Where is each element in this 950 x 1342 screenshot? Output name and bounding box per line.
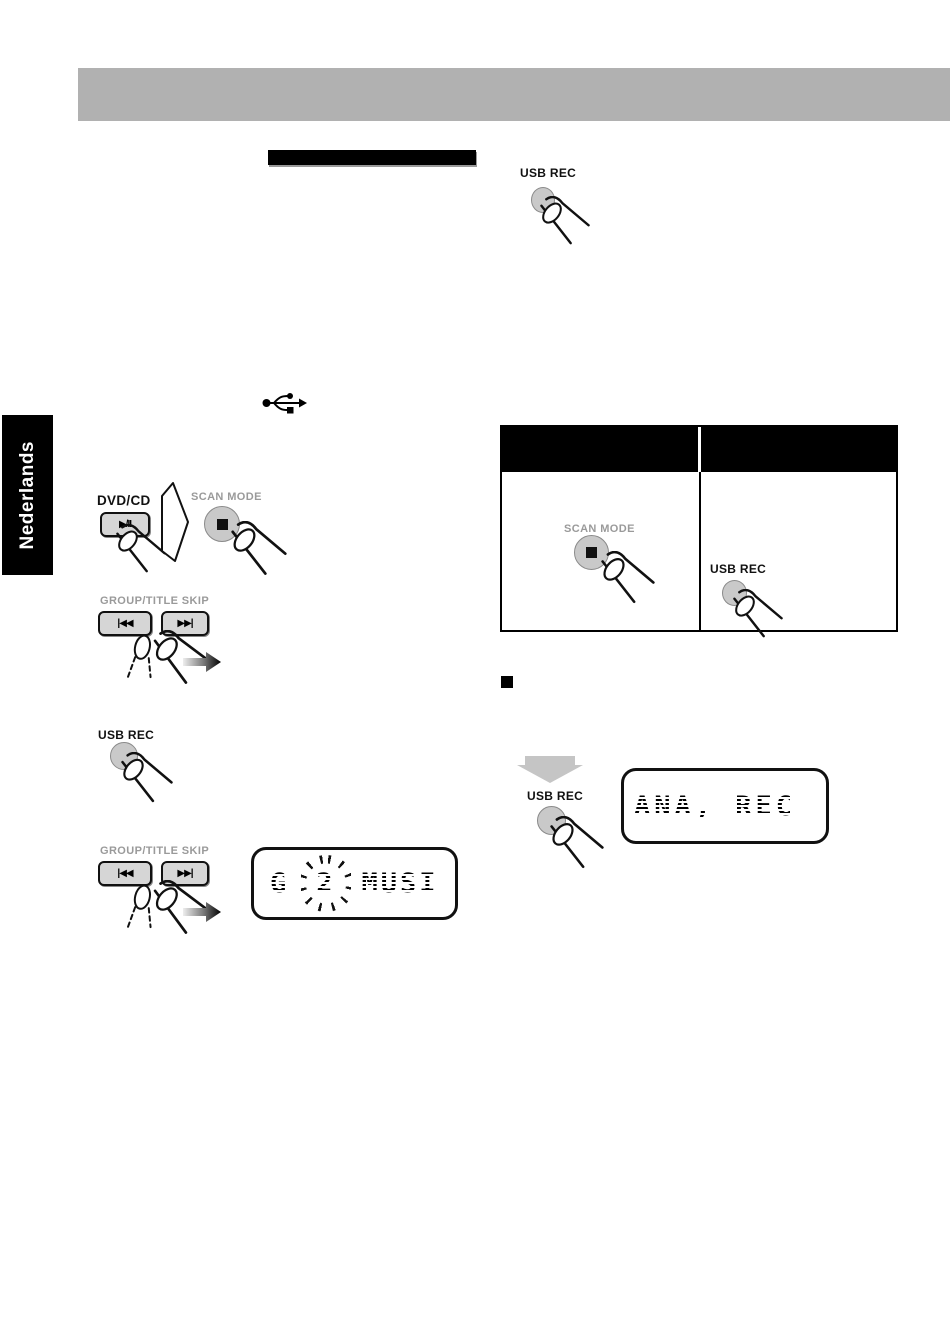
press-repeatedly-arrow-icon (183, 902, 221, 922)
pressing-finger-icon (597, 551, 659, 607)
pressing-finger-icon (117, 752, 177, 806)
language-tab-nederlands: Nederlands (2, 415, 53, 575)
options-table: SCAN MODE USB REC (500, 425, 898, 632)
lcd-group-blinking-digit: 2 (316, 868, 335, 899)
skip-forward-glyph: ▶▶| (177, 618, 192, 629)
usb-rec-label: USB REC (527, 789, 583, 803)
skip-back-glyph: |◀◀ (117, 868, 132, 879)
lcd-display-group: G 2 MUSI (251, 847, 458, 920)
usb-rec-label: USB REC (520, 166, 576, 180)
pressing-finger-icon (546, 816, 608, 872)
usb-rec-label: USB REC (710, 562, 766, 576)
lcd-group-suffix: MUSI (362, 868, 439, 899)
proceed-arrow-icon (157, 480, 190, 564)
pressing-finger-icon (227, 521, 291, 579)
manual-page: USB REC Nederlands DVD/CD ▶/II SCAN MODE… (0, 0, 950, 1342)
page-header-bar (78, 68, 950, 121)
scan-mode-label: SCAN MODE (564, 523, 635, 535)
lcd-group-prefix: G (270, 868, 289, 899)
skip-forward-glyph: ▶▶| (177, 868, 192, 879)
table-column-divider (699, 472, 701, 632)
press-repeatedly-arrow-icon (183, 652, 221, 672)
table-header-row (502, 427, 896, 472)
scan-mode-label: SCAN MODE (191, 491, 262, 503)
group-title-skip-label: GROUP/TITLE SKIP (100, 845, 209, 857)
table-body-row: SCAN MODE USB REC (502, 472, 896, 632)
skip-back-glyph: |◀◀ (117, 618, 132, 629)
pressing-finger-icon (729, 589, 787, 641)
pressing-finger-icon (536, 196, 594, 248)
lcd-rec-text: ANA, REC (634, 791, 796, 822)
then-down-arrow-icon (517, 756, 583, 783)
usb-trident-icon (262, 389, 308, 416)
stop-glyph (217, 519, 228, 530)
lcd-display-rec: ANA, REC (621, 768, 829, 844)
dvd-cd-label: DVD/CD (97, 493, 151, 508)
bullet-square-icon (501, 676, 513, 688)
table-header-cell-right (701, 427, 897, 472)
group-title-skip-label: GROUP/TITLE SKIP (100, 595, 209, 607)
section-title-redacted-bar (268, 150, 476, 165)
stop-glyph (586, 547, 597, 558)
language-tab-label: Nederlands (17, 441, 39, 549)
table-header-cell-left (502, 427, 698, 472)
usb-rec-label: USB REC (98, 728, 154, 742)
